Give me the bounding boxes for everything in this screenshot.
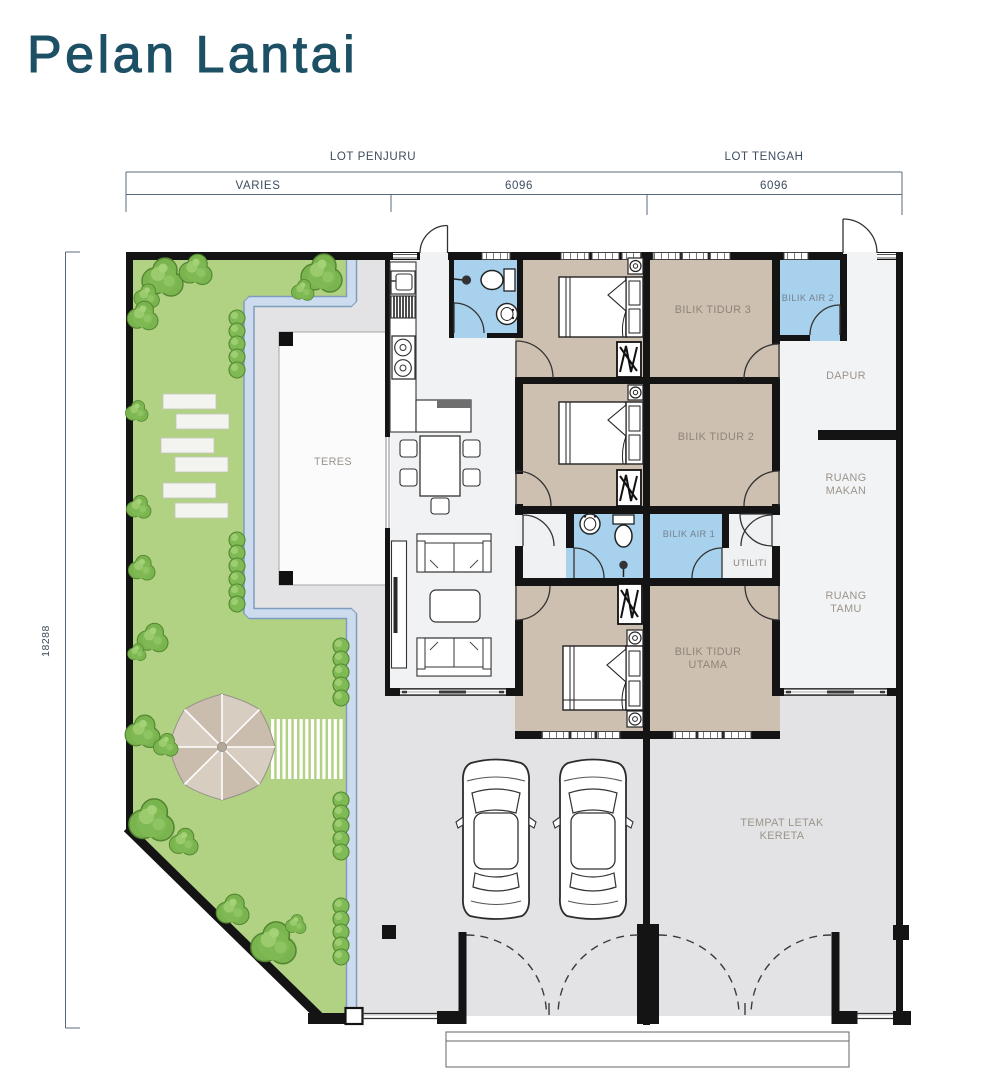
svg-text:DAPUR: DAPUR <box>826 370 866 382</box>
svg-text:BILIK TIDUR: BILIK TIDUR <box>675 646 742 658</box>
svg-text:LOT PENJURU: LOT PENJURU <box>330 151 416 163</box>
svg-text:TERES: TERES <box>314 456 352 468</box>
svg-text:KERETA: KERETA <box>760 830 805 842</box>
svg-text:BILIK TIDUR 2: BILIK TIDUR 2 <box>678 431 754 443</box>
svg-text:BILIK TIDUR 3: BILIK TIDUR 3 <box>675 304 751 316</box>
svg-text:LOT TENGAH: LOT TENGAH <box>724 151 803 163</box>
svg-text:6096: 6096 <box>760 180 788 192</box>
svg-text:BILIK AIR 2: BILIK AIR 2 <box>782 293 834 303</box>
svg-text:BILIK AIR 1: BILIK AIR 1 <box>663 529 715 539</box>
svg-text:6096: 6096 <box>505 180 533 192</box>
svg-text:UTAMA: UTAMA <box>689 659 728 671</box>
svg-text:MAKAN: MAKAN <box>826 485 866 497</box>
svg-text:RUANG: RUANG <box>826 472 867 484</box>
svg-text:18288: 18288 <box>40 625 52 657</box>
svg-text:VARIES: VARIES <box>236 180 281 192</box>
svg-text:UTILITI: UTILITI <box>733 558 767 568</box>
svg-text:RUANG: RUANG <box>826 590 867 602</box>
svg-text:Pelan Lantai: Pelan Lantai <box>27 26 358 84</box>
svg-text:TAMU: TAMU <box>830 603 861 615</box>
svg-text:TEMPAT LETAK: TEMPAT LETAK <box>740 817 824 829</box>
